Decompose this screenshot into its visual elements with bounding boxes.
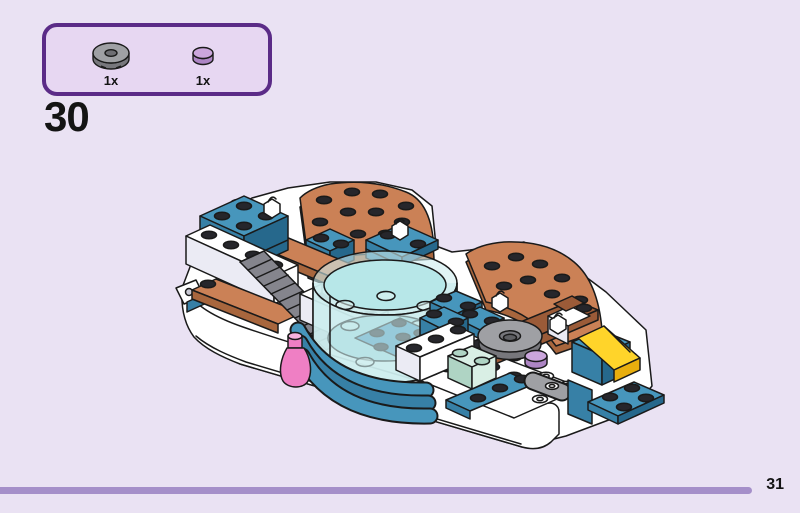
page-number: 31 [766,476,784,494]
lego-model-illustration [0,0,800,513]
instruction-page: 1x 1x 30 [0,0,800,513]
gray-capsule-plate [533,381,562,392]
lavender-round-plate [525,351,547,369]
footer-rule [0,487,752,494]
